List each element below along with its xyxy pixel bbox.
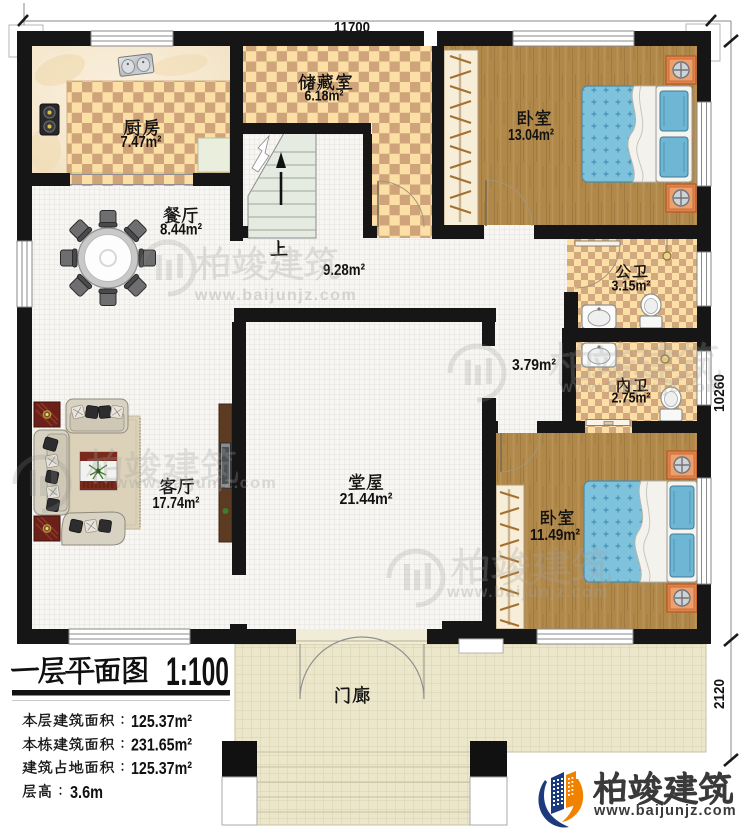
svg-text:www.baijunjz.com: www.baijunjz.com (593, 803, 737, 819)
svg-text:7.47m²: 7.47m² (121, 134, 162, 151)
svg-text:www.baijunjz.com: www.baijunjz.com (559, 379, 722, 396)
svg-text:2120: 2120 (711, 679, 728, 709)
svg-text:231.65m²: 231.65m² (131, 735, 192, 755)
svg-text:www.baijunjz.com: www.baijunjz.com (194, 287, 357, 304)
svg-text:11.49m²: 11.49m² (530, 527, 580, 544)
svg-text:9.28m²: 9.28m² (323, 262, 365, 279)
svg-text:125.37m²: 125.37m² (131, 711, 192, 731)
svg-text:www.baijunjz.com: www.baijunjz.com (446, 584, 609, 601)
svg-text:21.44m²: 21.44m² (340, 491, 393, 508)
svg-text:13.04m²: 13.04m² (508, 127, 554, 144)
svg-text:125.37m²: 125.37m² (131, 758, 192, 778)
svg-text:17.74m²: 17.74m² (153, 495, 200, 512)
svg-text:1:100: 1:100 (166, 650, 229, 694)
svg-text:3.79m²: 3.79m² (512, 357, 556, 374)
svg-text:3.15m²: 3.15m² (612, 279, 651, 295)
svg-text:www.baijunjz.com: www.baijunjz.com (114, 475, 277, 492)
svg-text:3.6m: 3.6m (70, 782, 103, 802)
svg-text:8.44m²: 8.44m² (160, 222, 202, 239)
svg-text:6.18m²: 6.18m² (305, 88, 344, 105)
